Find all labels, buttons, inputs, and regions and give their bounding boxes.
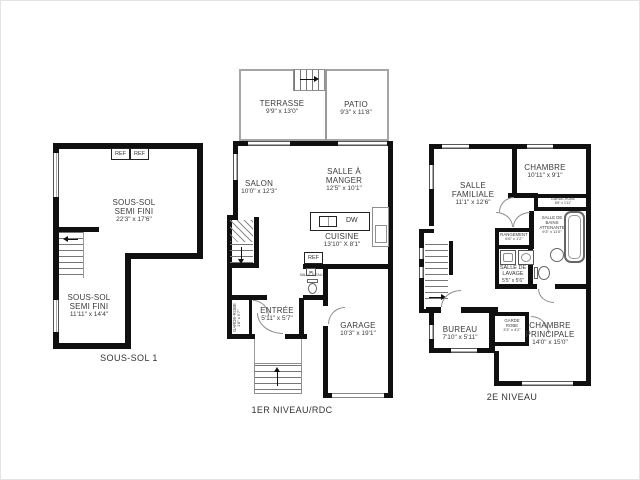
stairs-upper-flight [230, 220, 253, 242]
room-dim: 9'3" x 11'8" [316, 109, 396, 118]
window [527, 144, 553, 149]
toilet-icon [308, 283, 317, 294]
room-dim: 10'0" x 12'3" [209, 188, 309, 197]
toilet-icon [538, 266, 550, 280]
sink-icon [550, 248, 564, 262]
room-label-salle-deau: SALLE D'EAU [299, 273, 323, 277]
stair-arrow-stem [68, 239, 78, 240]
deck-stair-arrow-stem [300, 79, 314, 80]
room-dim: 22'3" x 17'6" [74, 216, 194, 225]
room-name: SALLE À MANGER [304, 167, 384, 185]
room-label-chambre-principale: CHAMBRE PRINCIPALE 14'0" x 15'0" [505, 321, 595, 348]
stair-arrow-stem [241, 247, 242, 259]
room-label-patio: PATIO 9'3" x 11'8" [316, 100, 396, 118]
room-label-sous-sol-bas: SOUS-SOL SEMI FINI 11'11" x 14'4" [29, 293, 149, 320]
room-dim: 9'3" x 11'0" [530, 230, 574, 235]
plan-title-main: 1ER NIVEAU/RDC [212, 405, 372, 415]
room-label-garde-robe-entree: GARDE-ROBE 1'8" x 5'7" [232, 301, 246, 335]
wall [534, 207, 591, 211]
room-dim: 8'8" x 1'11" [538, 201, 588, 205]
room-dim: 5'11" x 5'7" [237, 315, 317, 324]
room-name: SALON [209, 179, 309, 188]
room-name: SALLE DE LAVAGE [488, 265, 538, 278]
porch-side-line [301, 339, 302, 364]
wall [388, 141, 393, 398]
wall [131, 253, 203, 259]
window [522, 381, 573, 386]
room-name: CUISINE [302, 232, 382, 241]
room-dim: 12'5" x 10'1" [304, 185, 384, 194]
stair-arrow-icon [238, 259, 244, 264]
wall [303, 264, 393, 269]
window [419, 248, 424, 259]
stair-edge-line [83, 232, 84, 278]
window [233, 154, 238, 180]
room-name: BUREAU [420, 325, 500, 334]
dishwasher-label: DW [346, 217, 358, 224]
room-dim: 11'1" x 12'6" [428, 199, 518, 208]
window [419, 267, 424, 278]
wall [555, 284, 591, 289]
room-label-salle-a-manger: SALLE À MANGER 12'5" x 10'1" [304, 167, 384, 194]
door-arc [538, 289, 554, 303]
door-arc [496, 212, 513, 227]
fridge-label: REF [308, 255, 319, 261]
fridge-box: REF [130, 148, 149, 160]
room-name: SALLE DE BAINS ATTENANTE [530, 215, 574, 230]
room-label-salle-de-bains: SALLE DE BAINS ATTENANTE 9'3" x 11'0" [530, 215, 574, 235]
room-label-chambre: CHAMBRE 10'11" x 9'1" [505, 163, 585, 181]
room-label-salle-de-lavage: SALLE DE LAVAGE 5'5" x 5'6" [488, 265, 538, 284]
cooktop-divider [328, 217, 329, 226]
floor-plan-sheet: REF REF SOUS-SOL SEMI FINI 22'3" x 17'6"… [0, 0, 640, 480]
plan-title-upper: 2E NIVEAU [432, 392, 592, 402]
room-dim: 1'8" x 5'7" [237, 301, 242, 335]
room-name: SOUS-SOL SEMI FINI [74, 198, 194, 216]
steps-arrow-stem [277, 372, 278, 386]
deck-stairs [294, 70, 324, 90]
room-label-cuisine: CUISINE 13'10" X 8'1" [302, 232, 382, 250]
wall [586, 144, 591, 386]
room-label-garage: GARAGE 10'3" x 19'1" [318, 321, 398, 339]
room-label-bureau: BUREAU 7'10" x 5'11" [420, 325, 500, 343]
stair-arrow-stem [429, 297, 441, 298]
deck-stair-arrow-icon [314, 76, 319, 82]
room-dim: 5'5" x 5'6" [488, 278, 538, 285]
room-name: ENTRÉE [237, 306, 317, 315]
room-label-salon: SALON 10'0" x 12'3" [209, 179, 309, 197]
wall [197, 143, 203, 259]
room-label-salle-familiale: SALLE FAMILIALE 11'1" x 12'6" [428, 181, 518, 208]
wall [303, 295, 328, 300]
room-label-rangement: RANGEMENT 6'6" x 1'2" [497, 232, 531, 242]
room-dim: 14'0" x 15'0" [505, 339, 595, 348]
window [451, 348, 477, 353]
window [442, 144, 469, 149]
washer-icon [500, 250, 516, 265]
room-dim: 10'3" x 19'1" [318, 330, 398, 339]
room-label-sous-sol-haut: SOUS-SOL SEMI FINI 22'3" x 17'6" [74, 198, 194, 225]
room-name: CHAMBRE PRINCIPALE [505, 321, 595, 339]
room-dim: 13'10" X 8'1" [302, 241, 382, 250]
porch-side-line [254, 339, 255, 364]
wall [494, 351, 499, 386]
wall [254, 217, 259, 267]
room-dim: 6'6" x 1'2" [497, 237, 531, 242]
room-name: PATIO [316, 100, 396, 109]
room-label-entree: ENTRÉE 5'11" x 5'7" [237, 306, 317, 324]
wall [449, 241, 453, 275]
stair-arrow-icon [63, 236, 68, 242]
room-name: SALLE D'EAU [299, 273, 323, 277]
room-name: SALLE FAMILIALE [428, 181, 518, 199]
fridge-box: REF [111, 148, 130, 160]
plan-title-basement: SOUS-SOL 1 [49, 353, 209, 363]
room-name: CHAMBRE [505, 163, 585, 172]
room-name: GARAGE [318, 321, 398, 330]
window [248, 141, 290, 146]
room-dim: 11'11" x 14'4" [29, 311, 149, 320]
window [338, 141, 387, 146]
garage-door [332, 393, 384, 398]
window [53, 153, 59, 197]
wall [53, 343, 131, 349]
fridge-box: REF [304, 252, 323, 264]
room-label-garde-robe-chambre: GARDE-ROBE 8'8" x 1'11" [538, 197, 588, 205]
fridge-label: REF [115, 151, 126, 157]
room-dim: 7'10" x 5'11" [420, 334, 500, 343]
dryer-icon [518, 250, 534, 265]
steps-arrow-icon [274, 367, 280, 372]
fridge-label: REF [134, 151, 145, 157]
wall [495, 284, 537, 289]
door-arc [513, 212, 530, 227]
room-name: SOUS-SOL SEMI FINI [29, 293, 149, 311]
wall [495, 312, 529, 316]
wall [426, 307, 441, 313]
wall [227, 295, 267, 300]
room-dim: 10'11" x 9'1" [505, 172, 585, 181]
